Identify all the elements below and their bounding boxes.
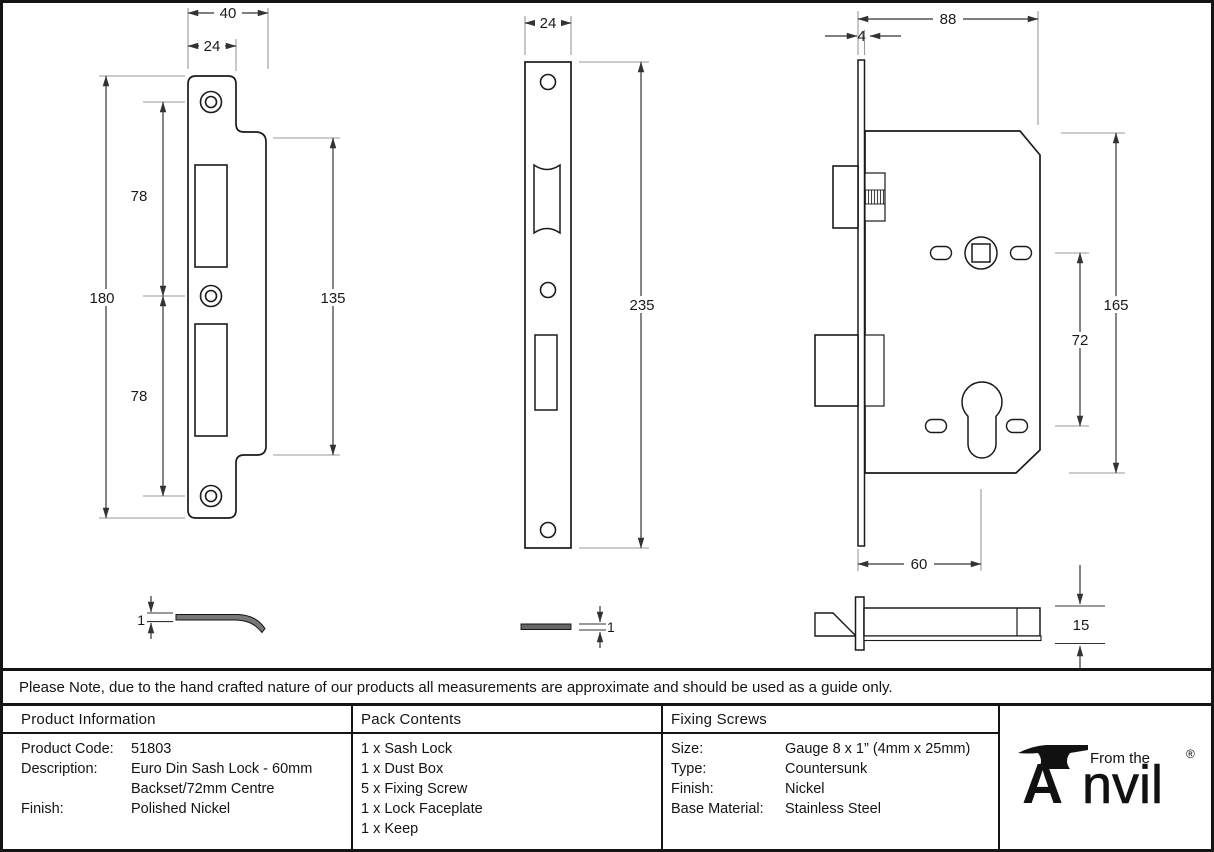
case-top: [864, 608, 1040, 636]
product-code-label: Product Code:: [21, 741, 114, 757]
pack-item: 1 x Sash Lock: [361, 741, 452, 757]
screw-size-label: Size:: [671, 741, 703, 757]
screw-material-label: Base Material:: [671, 801, 764, 817]
screw-size-value: Gauge 8 x 1” (4mm x 25mm): [785, 741, 970, 757]
brand-letter-a: A: [1022, 752, 1063, 816]
description-value-line1: Euro Din Sash Lock - 60mm: [131, 761, 312, 777]
dim-keep-thickness: 1: [137, 612, 145, 628]
finish-value: Polished Nickel: [131, 801, 230, 817]
registered-mark: ®: [1186, 747, 1195, 761]
faceplate-front-view: 24 235: [525, 15, 661, 548]
latch-spring-hatch: [865, 190, 885, 204]
latch-bolt-top: [815, 613, 856, 636]
faceplate-outline: [525, 62, 571, 548]
case-top-strip: [864, 636, 1041, 641]
dim-lock-case-thickness: 15: [1073, 617, 1090, 634]
pack-item: 1 x Dust Box: [361, 761, 443, 777]
dim-keep-height: 180: [89, 290, 114, 307]
screw-type-value: Countersunk: [785, 761, 867, 777]
col-fixing-screws-header: Fixing Screws: [671, 711, 767, 728]
dim-keep-seg-top: 78: [131, 188, 148, 205]
keep-plate-outline: [188, 76, 266, 518]
spec-sheet: 40 24 180 78 78 135 1: [0, 0, 1214, 852]
dim-keep-seg-bottom: 78: [131, 388, 148, 405]
pack-item: 5 x Fixing Screw: [361, 781, 467, 797]
deadbolt: [815, 335, 858, 406]
faceplate-profile-strip: [521, 624, 571, 630]
lock-case-view: 88 4 165 72 60: [815, 11, 1134, 573]
description-value-line2: Backset/72mm Centre: [131, 781, 274, 797]
dim-lock-backset: 60: [911, 556, 928, 573]
col-pack-contents-header: Pack Contents: [361, 711, 461, 728]
lock-case-outline: [865, 131, 1040, 473]
dim-keep-wide-height: 135: [320, 290, 345, 307]
product-code-value: 51803: [131, 741, 171, 757]
dim-faceplate-thickness: 1: [607, 619, 615, 635]
pack-item: 1 x Keep: [361, 821, 418, 837]
screw-finish-label: Finish:: [671, 781, 714, 797]
finish-label: Finish:: [21, 801, 64, 817]
description-label: Description:: [21, 761, 98, 777]
table-divider-1: [351, 706, 353, 852]
brand-tagline: From the: [1090, 750, 1150, 767]
deadbolt-tail: [865, 335, 884, 406]
dim-lock-case-height: 165: [1103, 297, 1128, 314]
dim-faceplate-width: 24: [540, 15, 557, 32]
col-product-info-header: Product Information: [21, 711, 156, 728]
table-header-rule: [3, 732, 999, 734]
faceplate-top: [856, 597, 865, 650]
note-text: Please Note, due to the hand crafted nat…: [19, 679, 893, 696]
screw-type-label: Type:: [671, 761, 706, 777]
keep-profile-strip: [176, 615, 265, 633]
dim-lock-depth: 88: [940, 11, 957, 28]
latch-bolt: [833, 166, 858, 228]
keep-front-view: 40 24 180 78 78 135: [87, 5, 350, 518]
dim-faceplate-height: 235: [629, 297, 654, 314]
technical-drawing: 40 24 180 78 78 135 1: [3, 3, 1211, 668]
note-bar: Please Note, due to the hand crafted nat…: [3, 668, 1211, 706]
table-divider-2: [661, 706, 663, 852]
keep-side-view: 1: [137, 596, 265, 639]
dim-lock-centres: 72: [1072, 332, 1089, 349]
brand-logo: A nvil From the ®: [998, 706, 1211, 852]
faceplate-side-view: 1: [521, 606, 615, 648]
screw-material-value: Stainless Steel: [785, 801, 881, 817]
pack-item: 1 x Lock Faceplate: [361, 801, 483, 817]
lock-top-view: 15: [815, 565, 1105, 668]
dim-keep-width-outer: 40: [220, 5, 237, 22]
screw-finish-value: Nickel: [785, 781, 824, 797]
dim-keep-width-inner: 24: [204, 38, 221, 55]
lock-faceplate-edge: [858, 60, 865, 546]
dim-lock-plate-thickness: 4: [857, 28, 865, 45]
